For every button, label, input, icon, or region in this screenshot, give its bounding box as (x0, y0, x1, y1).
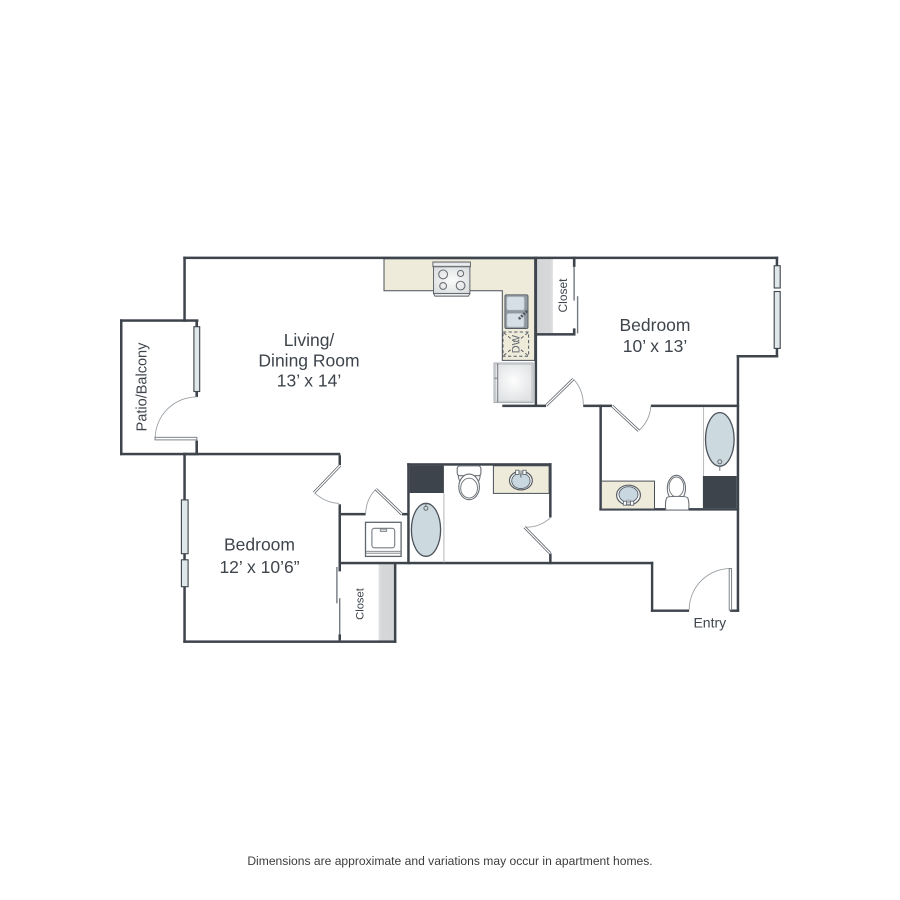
svg-text:DW: DW (510, 334, 522, 353)
svg-text:Patio/Balcony: Patio/Balcony (135, 342, 151, 431)
svg-text:Bedroom: Bedroom (224, 535, 295, 555)
svg-text:Closet: Closet (556, 278, 570, 313)
svg-text:Entry: Entry (693, 615, 726, 631)
svg-text:Living/: Living/ (284, 330, 335, 350)
svg-text:13’ x 14’: 13’ x 14’ (277, 371, 342, 391)
svg-text:Dining Room: Dining Room (258, 351, 359, 371)
svg-text:10’ x 13’: 10’ x 13’ (623, 336, 688, 356)
svg-text:Closet: Closet (355, 587, 367, 620)
svg-text:Bedroom: Bedroom (619, 315, 690, 335)
svg-text:Dimensions are approximate and: Dimensions are approximate and variation… (247, 854, 652, 868)
svg-text:12’ x 10’6”: 12’ x 10’6” (219, 557, 299, 577)
